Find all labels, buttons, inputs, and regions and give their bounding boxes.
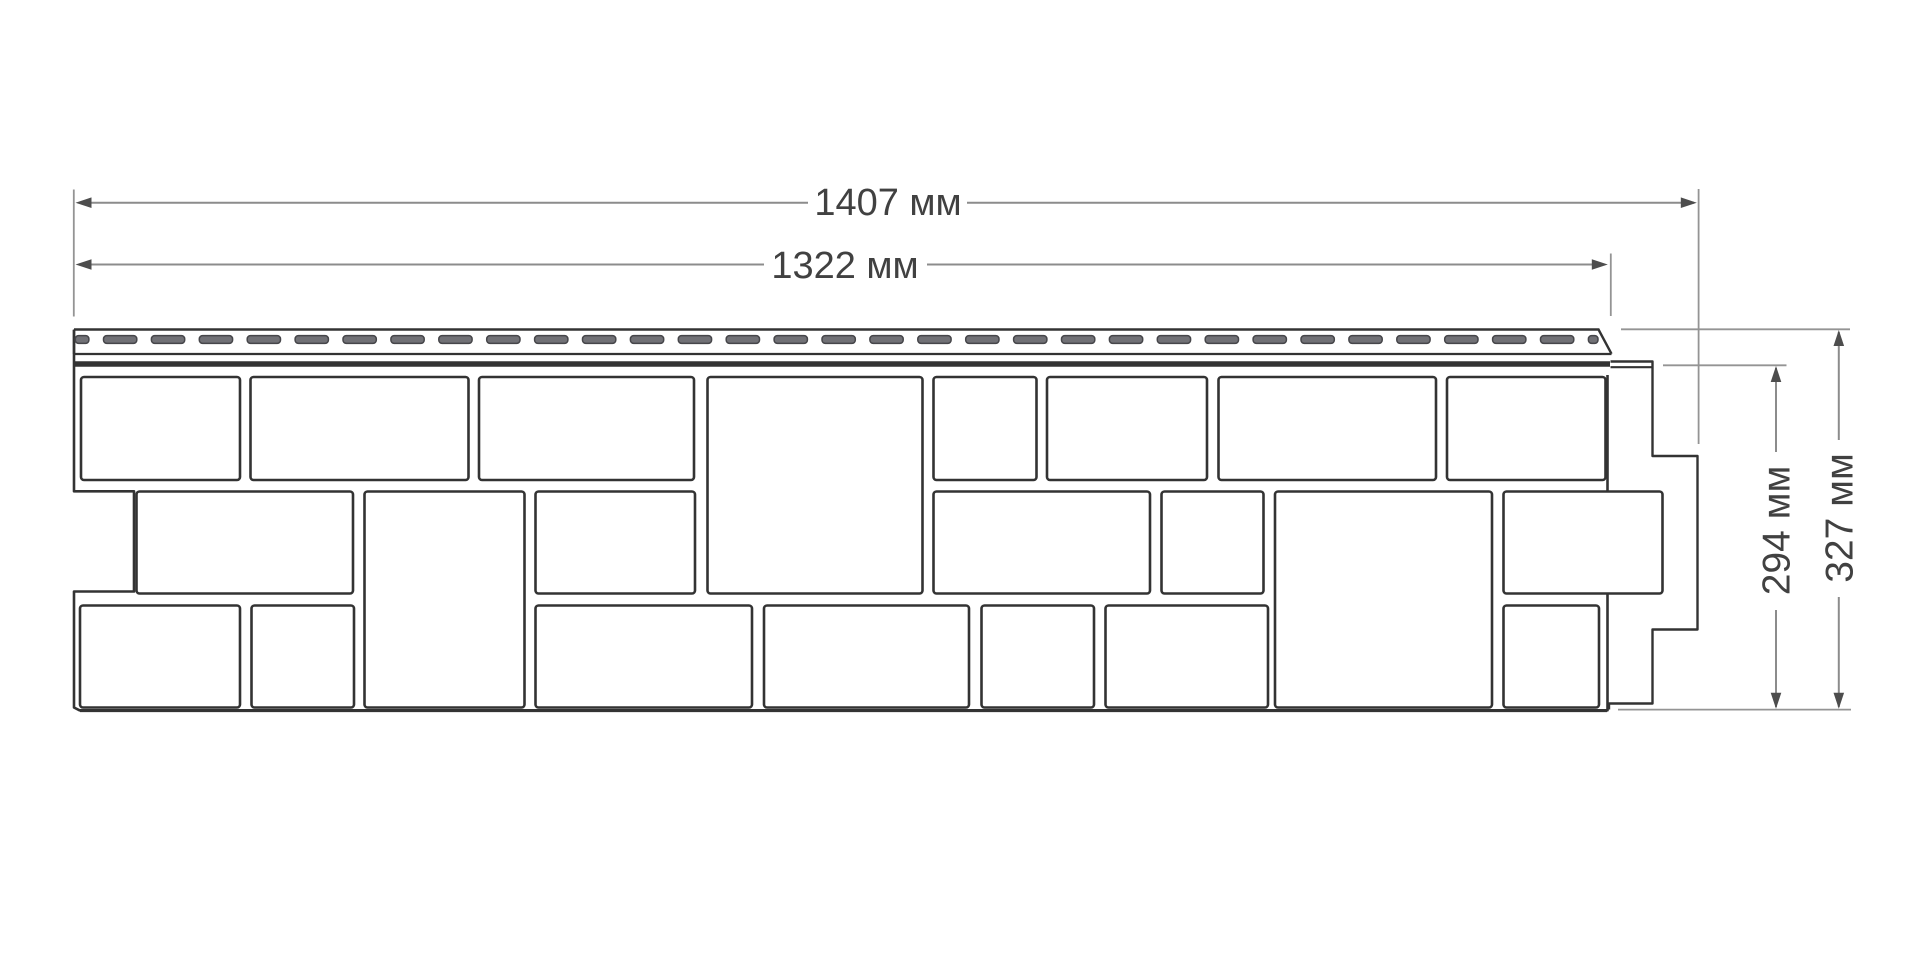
svg-text:1407 мм: 1407 мм <box>814 182 961 224</box>
svg-text:327 мм: 327 мм <box>1819 453 1862 583</box>
svg-text:1322 мм: 1322 мм <box>771 245 918 287</box>
svg-text:294 мм: 294 мм <box>1756 466 1799 596</box>
